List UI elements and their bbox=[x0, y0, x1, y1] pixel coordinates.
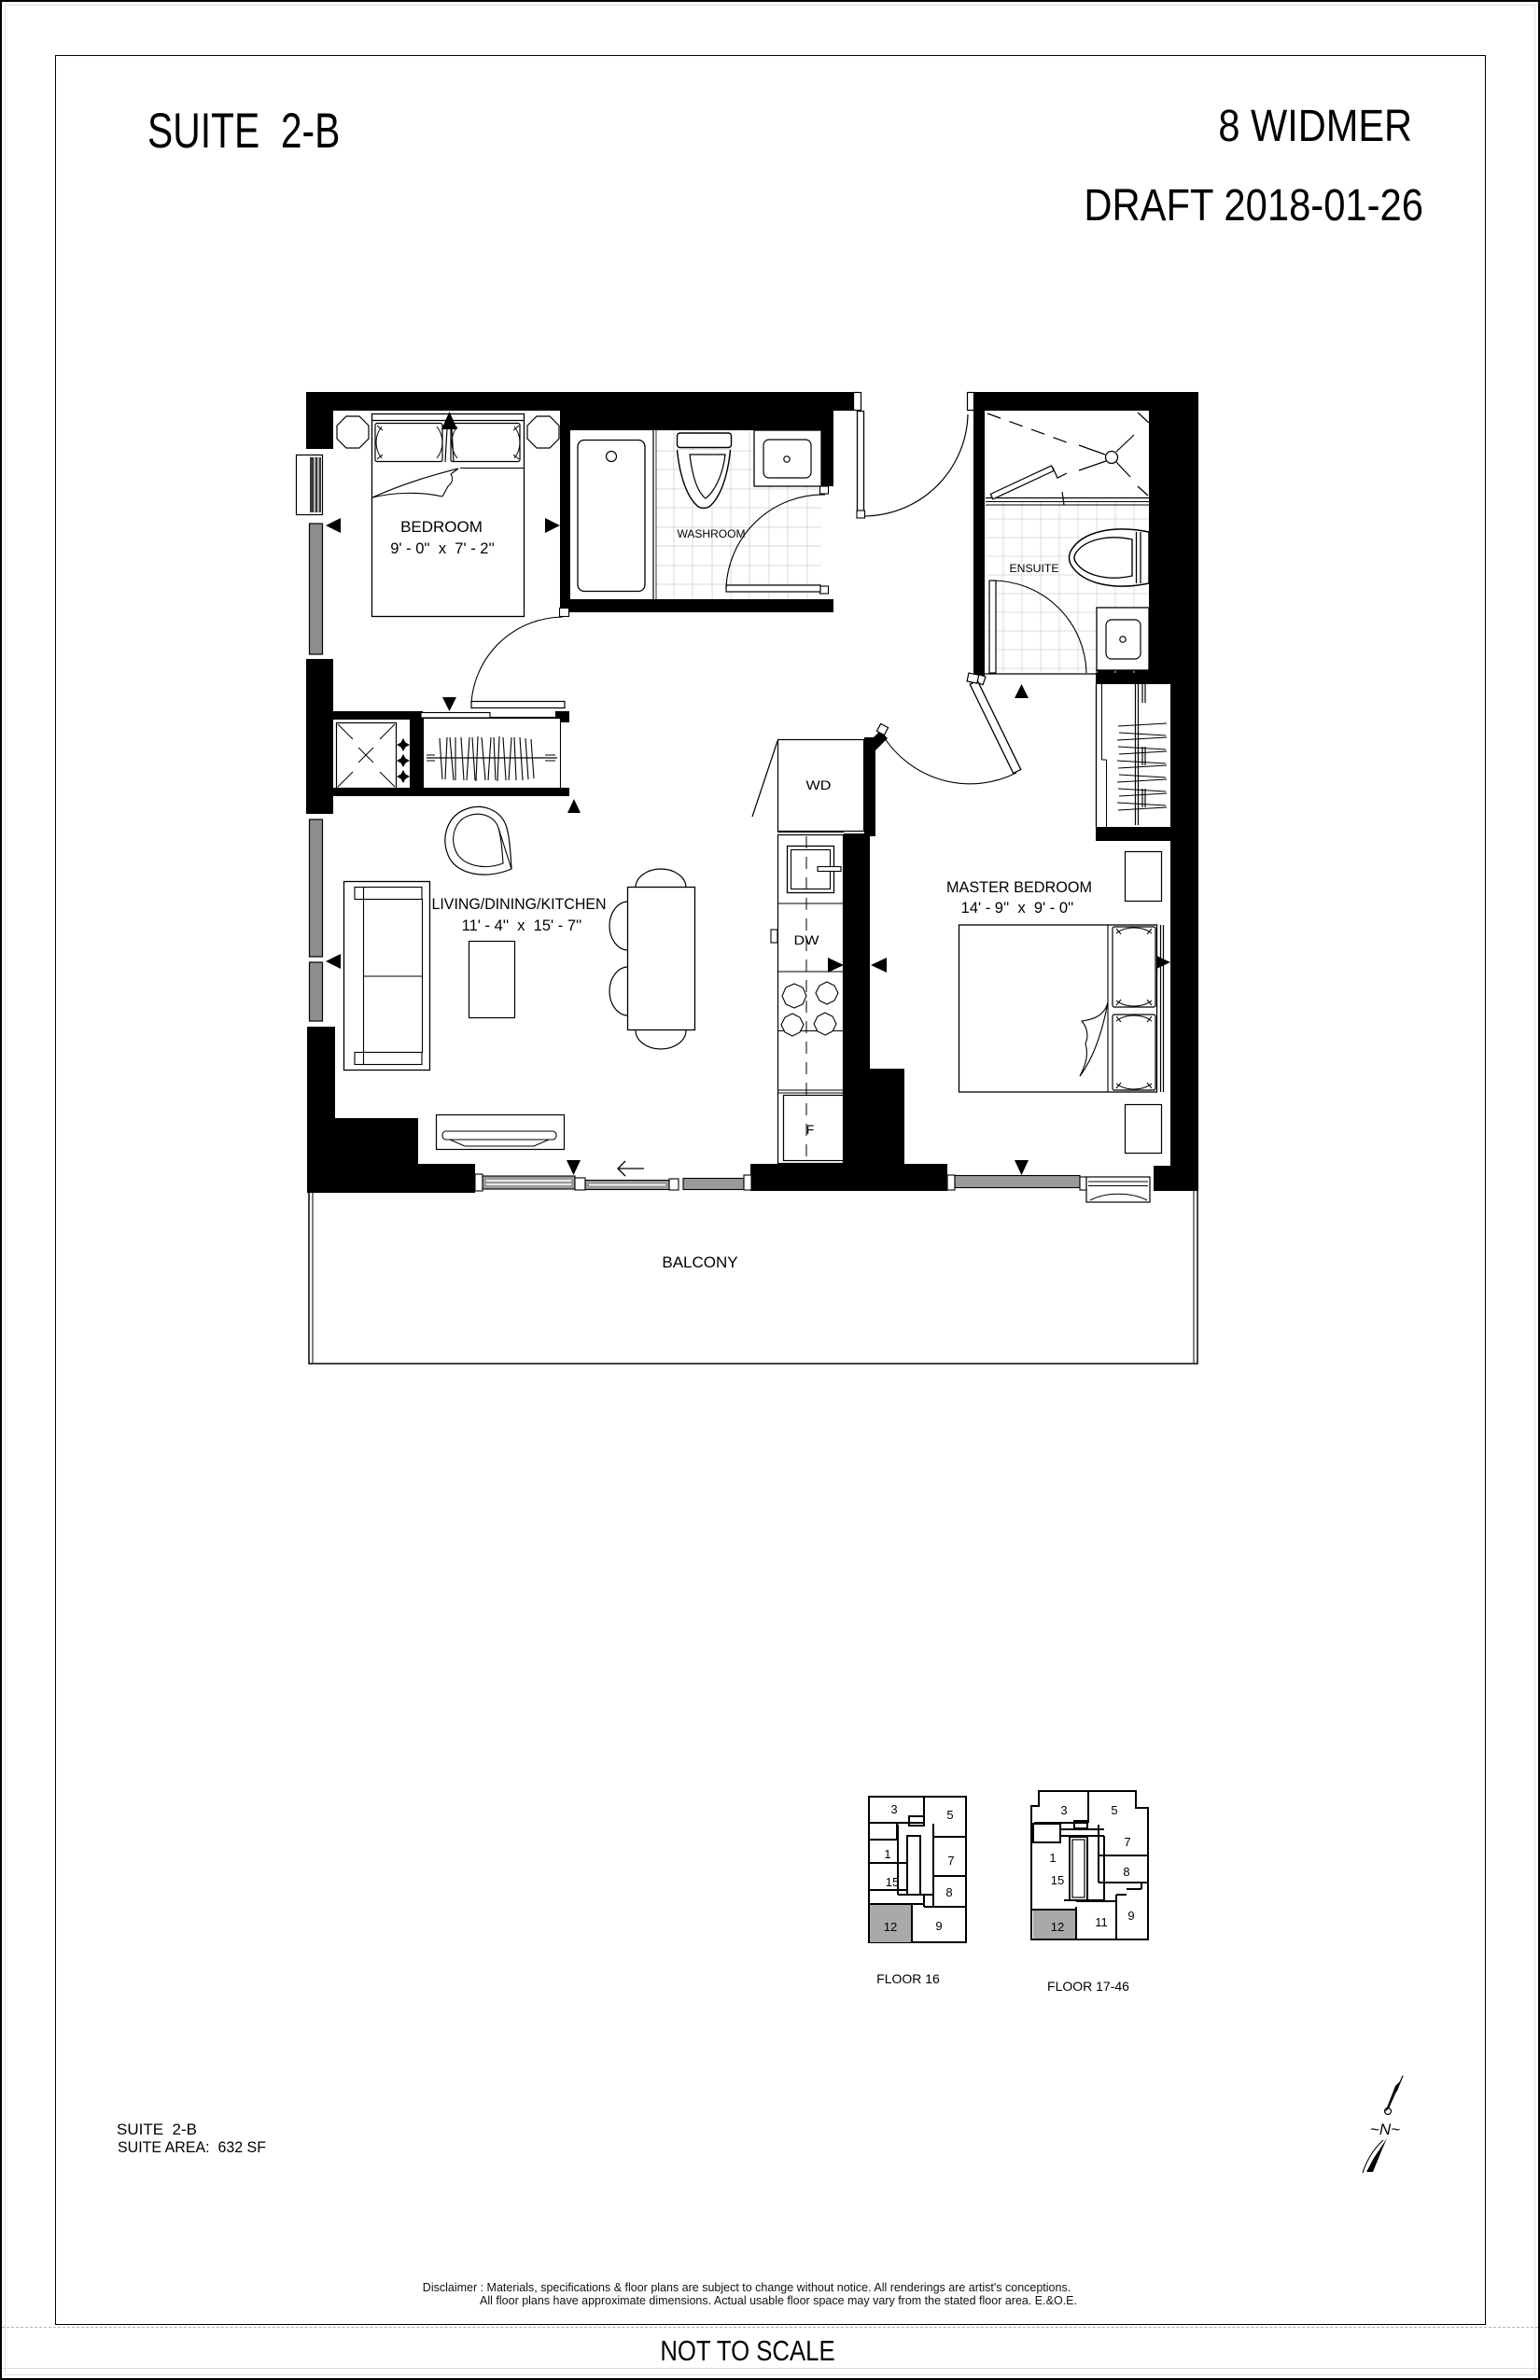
svg-text:9: 9 bbox=[1127, 1909, 1134, 1923]
svg-text:FLOOR 17-46: FLOOR 17-46 bbox=[1047, 1979, 1129, 1994]
svg-text:BEDROOM: BEDROOM bbox=[400, 518, 483, 536]
svg-text:14' - 9'' x 9' - 0'': 14' - 9'' x 9' - 0'' bbox=[961, 900, 1074, 917]
svg-text:WD: WD bbox=[806, 777, 832, 792]
svg-text:8: 8 bbox=[945, 1885, 952, 1899]
svg-text:F: F bbox=[806, 1122, 815, 1137]
svg-text:DW: DW bbox=[794, 932, 820, 947]
svg-text:LIVING/DINING/KITCHEN: LIVING/DINING/KITCHEN bbox=[432, 895, 607, 913]
svg-text:1: 1 bbox=[884, 1847, 890, 1861]
svg-text:ENSUITE: ENSUITE bbox=[1010, 562, 1059, 575]
svg-text:9: 9 bbox=[935, 1919, 942, 1933]
svg-text:MASTER BEDROOM: MASTER BEDROOM bbox=[946, 878, 1092, 896]
svg-text:5: 5 bbox=[1111, 1803, 1117, 1817]
svg-text:15: 15 bbox=[886, 1875, 899, 1889]
svg-text:FLOOR 16: FLOOR 16 bbox=[876, 1971, 940, 1986]
svg-text:1: 1 bbox=[1049, 1851, 1056, 1865]
svg-text:11: 11 bbox=[1095, 1915, 1108, 1929]
svg-text:3: 3 bbox=[890, 1802, 897, 1816]
svg-text:5: 5 bbox=[946, 1808, 953, 1822]
svg-text:WASHROOM: WASHROOM bbox=[678, 527, 746, 540]
svg-text:15: 15 bbox=[1051, 1873, 1064, 1887]
svg-text:BALCONY: BALCONY bbox=[662, 1253, 737, 1271]
svg-text:8: 8 bbox=[1123, 1865, 1129, 1879]
svg-text:12: 12 bbox=[884, 1920, 897, 1934]
svg-text:11' - 4'' x 15' - 7'': 11' - 4'' x 15' - 7'' bbox=[462, 917, 582, 934]
svg-text:3: 3 bbox=[1060, 1803, 1067, 1817]
svg-text:12: 12 bbox=[1051, 1920, 1064, 1934]
svg-text:~N~: ~N~ bbox=[1370, 2121, 1400, 2138]
svg-text:7: 7 bbox=[1124, 1835, 1130, 1849]
svg-text:9' - 0'' x 7' - 2'': 9' - 0'' x 7' - 2'' bbox=[390, 540, 495, 557]
svg-text:7: 7 bbox=[947, 1854, 954, 1868]
